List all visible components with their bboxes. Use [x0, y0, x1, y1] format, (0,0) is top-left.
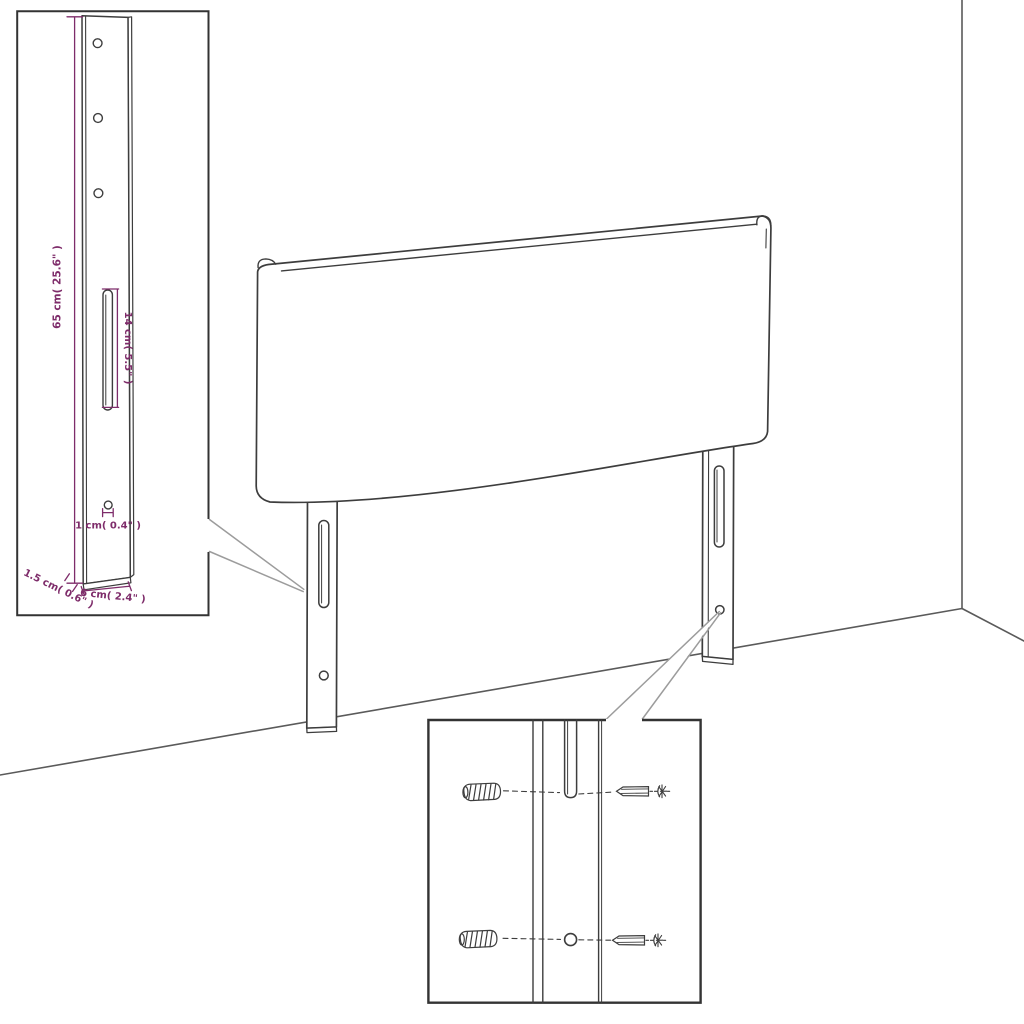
dim-height-label: 65 cm( 25.6" )	[52, 245, 64, 329]
floor-line-right	[962, 609, 1024, 642]
left-leg-slot	[319, 521, 329, 608]
bracket-drawing	[82, 16, 134, 590]
headboard-assembly-diagram: 65 cm( 25.6" ) 14 cm( 5.5" ) 1 cm( 0.4" …	[0, 0, 1024, 1024]
left-leg-hole	[319, 671, 328, 680]
wall-plug-bottom	[459, 930, 497, 947]
dim-hole-label: 1 cm( 0.4" )	[75, 521, 141, 532]
hardware-callout-line-right	[642, 613, 721, 720]
left-leg-bottom-face	[307, 727, 337, 733]
diagram-page: 65 cm( 25.6" ) 14 cm( 5.5" ) 1 cm( 0.4" …	[0, 0, 1024, 1024]
hardware-callout-line-left	[606, 612, 719, 720]
hardware-detail-box	[427, 719, 701, 1004]
right-leg-slot	[714, 466, 724, 547]
bracket-inset-box: 65 cm( 25.6" ) 14 cm( 5.5" ) 1 cm( 0.4" …	[17, 11, 210, 617]
headboard-panel	[256, 216, 771, 503]
wall-plug-top	[463, 783, 501, 800]
bracket-callout-wedge	[210, 520, 305, 592]
hardware-callout-wedge	[606, 612, 721, 720]
left-leg	[307, 492, 337, 733]
headboard-outline	[256, 216, 771, 502]
dim-slot-label: 14 cm( 5.5" )	[122, 312, 133, 385]
